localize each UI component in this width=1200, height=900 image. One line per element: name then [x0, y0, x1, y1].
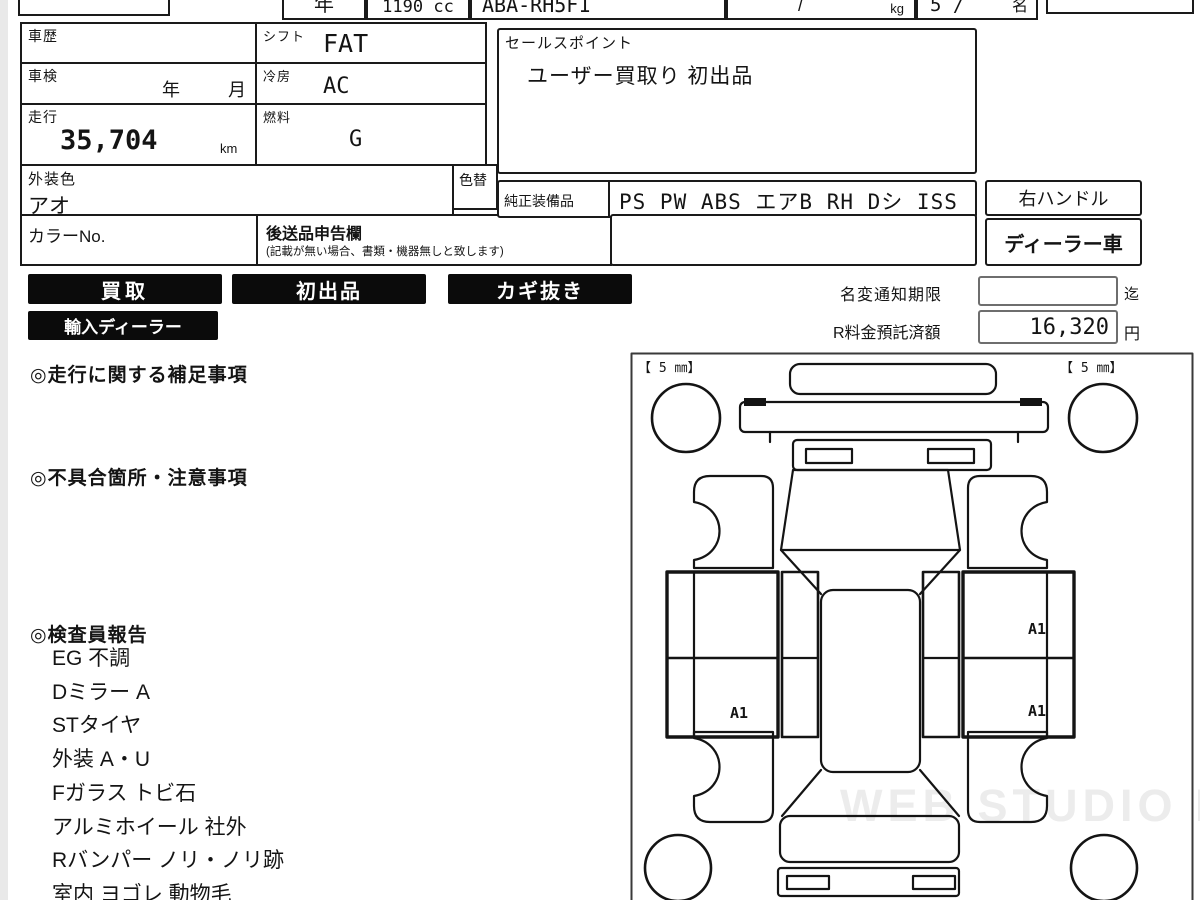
sales-point-value: ユーザー買取り 初出品 [527, 60, 753, 90]
displacement-cell: 1190 cc [366, 0, 470, 20]
later-items-content-box [610, 214, 977, 266]
color-no-cell: カラーNo. [20, 214, 258, 266]
inspection-year: 年 [162, 76, 180, 102]
taillight-left [787, 876, 829, 889]
shift-label: シフト [263, 26, 305, 45]
car-diagram-svg [630, 352, 1195, 900]
recycle-label: R料金預託済額 [833, 319, 941, 343]
dealer-car-box: ディーラー車 [985, 218, 1142, 266]
report-item: STタイヤ [52, 709, 284, 743]
damage-mark-a1-left-lower: A1 [730, 704, 748, 722]
mileage-unit: km [220, 141, 237, 156]
later-items-cell: 後送品申告欄 (記載が無い場合、書類・機器無しと致します) [256, 214, 612, 266]
history-cell: 車歴 [22, 24, 257, 64]
capacity-value: 5 / [930, 0, 964, 16]
report-item: Fガラス トビ石 [52, 777, 284, 811]
equipment-label-cell: 純正装備品 [499, 182, 610, 216]
wheel-front-right [1069, 384, 1137, 452]
top-empty-cell [18, 0, 170, 16]
recycle-value: 16,320 [1030, 315, 1109, 340]
weight-unit: kg [890, 1, 904, 16]
aircon-label: 冷房 [263, 66, 291, 85]
report-item: Rバンパー ノリ・ノリ跡 [52, 844, 284, 878]
vehicle-info-table: 車歴 シフト FAT 車検 年 月 冷房 AC 走行 35,704 km 燃料 … [20, 22, 487, 166]
damage-mark-a1-right-lower: A1 [1028, 702, 1046, 720]
steering-value: 右ハンドル [1019, 185, 1109, 211]
history-label: 車歴 [28, 26, 58, 46]
recycle-suffix: 円 [1124, 320, 1140, 344]
car-damage-diagram: WEB STUDIO PRO [630, 352, 1195, 900]
sales-point-label: セールスポイント [505, 32, 633, 53]
report-item: アルミホイール 社外 [52, 811, 284, 845]
displacement-value: 1190 cc [382, 0, 454, 17]
fuel-value: G [349, 127, 362, 152]
name-change-label: 名変通知期限 [840, 281, 942, 305]
fender-front-left [694, 476, 773, 568]
page-edge [0, 0, 8, 900]
exterior-color-label: 外装色 [28, 168, 76, 189]
fender-rear-right [968, 732, 1047, 822]
rear-pillar-left [782, 770, 821, 816]
capacity-cell: 5 / 名 [916, 0, 1038, 20]
report-item: 室内 ヨゴレ 動物毛 [52, 878, 284, 900]
wheel-rear-right [1071, 835, 1137, 900]
equipment-label: 純正装備品 [504, 191, 574, 211]
door-block-right [963, 572, 1074, 737]
windshield [781, 470, 960, 550]
color-change-cell: 色替 [452, 164, 498, 210]
defects-heading: ◎不具合箇所・注意事項 [30, 463, 248, 490]
panel-tab-left [744, 398, 766, 406]
later-items-label: 後送品申告欄 [266, 220, 362, 244]
report-item: EG 不調 [52, 642, 284, 676]
steering-box: 右ハンドル [985, 180, 1142, 216]
inspection-cell: 車検 年 月 [22, 64, 257, 105]
weight-slash: / [798, 0, 803, 16]
sill-strip-left [782, 572, 818, 737]
inspector-report-list: EG 不調 Dミラー A STタイヤ 外装 A・U Fガラス トビ石 アルミホイ… [52, 642, 284, 900]
weight-cell: / kg [726, 0, 916, 20]
recycle-field: 16,320 [978, 310, 1118, 344]
name-change-field [978, 276, 1118, 306]
front-panel [740, 402, 1048, 432]
fender-rear-left [694, 732, 773, 822]
badge-purchase: 買取 [28, 274, 222, 304]
wheel-front-left [652, 384, 720, 452]
door-block-left [667, 572, 778, 737]
badge-import-dealer: 輸入ディーラー [28, 311, 218, 340]
taillight-right [913, 876, 955, 889]
fender-front-right [968, 476, 1047, 568]
exterior-color-cell: 外装色 アオ [20, 164, 454, 216]
shift-value: FAT [323, 29, 368, 58]
model-code-cell: ABA-RH5F1 [470, 0, 726, 20]
dealer-car-value: ディーラー車 [1004, 228, 1123, 257]
headlight-right [928, 449, 974, 463]
roof [821, 590, 920, 772]
equipment-row: 純正装備品 PS PW ABS エアB RH Dシ ISS [497, 180, 977, 218]
report-item: 外装 A・U [52, 743, 284, 777]
top-partial-cell [1046, 0, 1194, 14]
fuel-cell: 燃料 G [257, 105, 485, 164]
badge-first-listing: 初出品 [232, 274, 426, 304]
equipment-value: PS PW ABS エアB RH Dシ ISS [619, 186, 958, 216]
color-change-label: 色替 [459, 170, 487, 190]
tread-depth-left: 【 5 ㎜】 [638, 357, 700, 376]
top-year-cell: 年 [282, 0, 366, 20]
report-item: Dミラー A [52, 676, 284, 710]
name-change-suffix: 迄 [1124, 283, 1139, 304]
hood-panel [793, 440, 991, 470]
rear-pillar-right [920, 770, 959, 816]
fuel-label: 燃料 [263, 107, 291, 126]
year-suffix: 年 [314, 0, 334, 17]
front-bumper [790, 364, 996, 394]
mileage-cell: 走行 35,704 km [22, 105, 257, 164]
panel-tab-right [1020, 398, 1042, 406]
mileage-value: 35,704 [60, 125, 158, 156]
model-code-value: ABA-RH5F1 [482, 0, 590, 17]
inspection-label: 車検 [28, 66, 58, 86]
capacity-unit: 名 [1012, 0, 1028, 16]
shift-cell: シフト FAT [257, 24, 485, 64]
sill-strip-right [923, 572, 959, 737]
headlight-left [806, 449, 852, 463]
aircon-cell: 冷房 AC [257, 64, 485, 105]
color-no-label: カラーNo. [28, 222, 105, 247]
mileage-label: 走行 [28, 107, 58, 127]
inspection-month: 月 [228, 76, 246, 102]
tread-depth-right: 【 5 ㎜】 [1060, 357, 1122, 376]
sales-point-box: セールスポイント ユーザー買取り 初出品 [497, 28, 977, 174]
badge-no-key: カギ抜き [448, 274, 632, 304]
wheel-rear-left [645, 835, 711, 900]
aircon-value: AC [323, 74, 350, 99]
rear-panel [778, 868, 959, 896]
damage-mark-a1-right-upper: A1 [1028, 620, 1046, 638]
trunk-lid [780, 816, 959, 862]
driving-notes-heading: ◎走行に関する補足事項 [30, 360, 248, 387]
later-items-note: (記載が無い場合、書類・機器無しと致します) [266, 243, 504, 259]
